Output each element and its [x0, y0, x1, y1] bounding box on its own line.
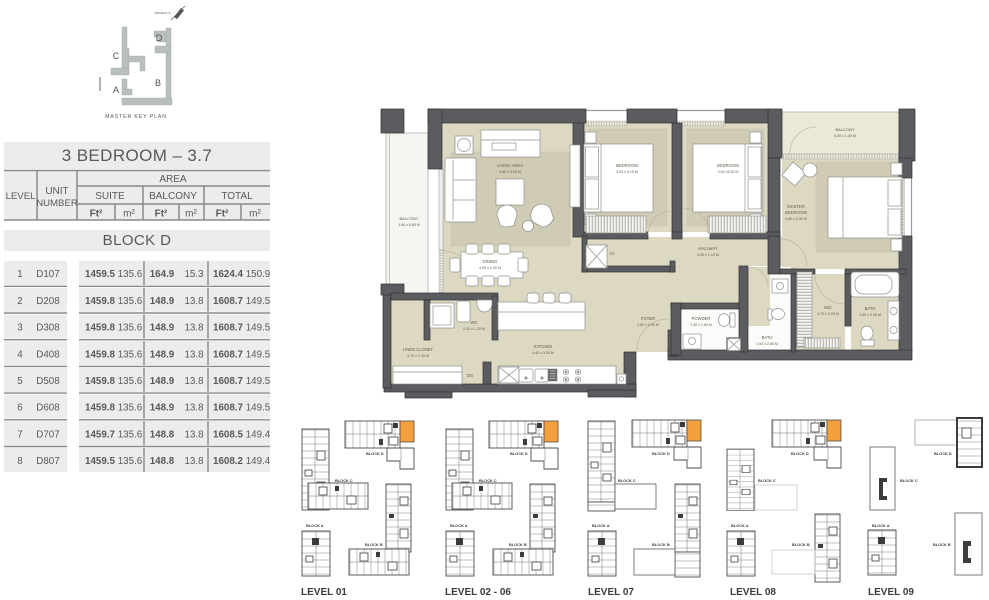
svg-text:13.8: 13.8 — [184, 403, 204, 414]
svg-text:LEVEL: LEVEL — [6, 191, 37, 202]
svg-text:1608.7: 1608.7 — [213, 296, 244, 307]
svg-text:NUMBER: NUMBER — [36, 198, 78, 209]
svg-text:4.40 x 3.00 M: 4.40 x 3.00 M — [532, 351, 554, 355]
svg-text:m²: m² — [185, 209, 197, 220]
svg-text:4.00 x 1.40 M: 4.00 x 1.40 M — [834, 134, 856, 138]
svg-text:3.00 x3.32 M: 3.00 x3.32 M — [718, 170, 739, 174]
svg-text:1459.8: 1459.8 — [85, 403, 116, 414]
svg-text:1608.7: 1608.7 — [213, 349, 244, 360]
svg-text:135.6: 135.6 — [118, 456, 143, 467]
svg-text:BLOCK C: BLOCK C — [618, 478, 636, 483]
svg-text:WIC: WIC — [824, 305, 832, 310]
svg-text:BLOCK D: BLOCK D — [366, 451, 384, 456]
svg-text:4: 4 — [17, 349, 23, 360]
svg-text:LINEN CLOSET: LINEN CLOSET — [403, 347, 434, 352]
svg-text:D107: D107 — [36, 269, 59, 280]
svg-text:8: 8 — [17, 456, 23, 467]
svg-text:BALCONY: BALCONY — [149, 191, 197, 202]
svg-text:D608: D608 — [36, 403, 60, 414]
svg-text:BLOCK D: BLOCK D — [510, 451, 528, 456]
svg-text:150.9: 150.9 — [246, 269, 270, 280]
svg-text:149.5: 149.5 — [246, 403, 270, 414]
svg-text:LEVEL 09: LEVEL 09 — [868, 587, 914, 598]
svg-text:13.8: 13.8 — [184, 323, 204, 334]
svg-text:13.8: 13.8 — [184, 349, 204, 360]
svg-text:A: A — [113, 85, 119, 95]
svg-text:BLOCK B: BLOCK B — [365, 542, 383, 547]
svg-text:15.3: 15.3 — [184, 269, 204, 280]
svg-text:2.20 x 1.20 M: 2.20 x 1.20 M — [463, 327, 485, 331]
svg-text:BLOCK C: BLOCK C — [900, 478, 918, 483]
svg-text:1459.5: 1459.5 — [85, 456, 116, 467]
svg-text:3.00 x 3.10 M: 3.00 x 3.10 M — [616, 170, 638, 174]
svg-text:1.60 x 2.80 M: 1.60 x 2.80 M — [756, 342, 778, 346]
svg-text:BLOCK B: BLOCK B — [509, 542, 527, 547]
svg-text:BLOCK D: BLOCK D — [791, 451, 809, 456]
svg-text:135.6: 135.6 — [118, 296, 143, 307]
svg-text:DINING: DINING — [483, 259, 498, 264]
svg-text:MASTER KEY PLAN: MASTER KEY PLAN — [105, 114, 167, 120]
svg-text:BEDROOM: BEDROOM — [616, 163, 638, 168]
svg-text:D408: D408 — [36, 349, 60, 360]
svg-text:1608.2: 1608.2 — [213, 456, 244, 467]
svg-text:m²: m² — [249, 209, 261, 220]
svg-text:BATH: BATH — [762, 335, 773, 340]
svg-text:1.30 x 1.50 M: 1.30 x 1.50 M — [690, 323, 712, 327]
svg-text:1624.4: 1624.4 — [213, 269, 244, 280]
svg-text:PROJECT N.: PROJECT N. — [155, 11, 172, 15]
svg-text:5: 5 — [17, 376, 23, 387]
svg-text:148.8: 148.8 — [150, 456, 175, 467]
svg-text:1459.8: 1459.8 — [85, 376, 116, 387]
svg-text:Ft²: Ft² — [216, 209, 229, 220]
svg-text:B: B — [155, 78, 161, 88]
svg-text:BLOCK A: BLOCK A — [592, 523, 610, 528]
svg-text:1.50 x 2.50 M: 1.50 x 2.50 M — [637, 323, 659, 327]
svg-text:148.9: 148.9 — [150, 403, 175, 414]
svg-text:6: 6 — [17, 403, 23, 414]
svg-text:13.8: 13.8 — [184, 376, 204, 387]
svg-text:135.6: 135.6 — [118, 349, 143, 360]
svg-text:164.9: 164.9 — [150, 269, 175, 280]
svg-text:D807: D807 — [36, 456, 59, 467]
svg-text:13.8: 13.8 — [184, 456, 204, 467]
svg-text:1.70 x 2.20 M: 1.70 x 2.20 M — [817, 312, 839, 316]
svg-text:LEVEL 07: LEVEL 07 — [588, 587, 634, 598]
svg-text:D208: D208 — [36, 296, 60, 307]
svg-text:UNIT: UNIT — [45, 186, 68, 197]
svg-text:BLOCK D: BLOCK D — [934, 451, 952, 456]
svg-text:BEDROOM: BEDROOM — [717, 163, 739, 168]
svg-text:1.60 x 5.60 M: 1.60 x 5.60 M — [398, 223, 420, 227]
svg-text:LEVEL 02 - 06: LEVEL 02 - 06 — [445, 587, 511, 598]
svg-text:148.9: 148.9 — [150, 349, 175, 360]
svg-text:148.8: 148.8 — [150, 429, 175, 440]
svg-text:4.90 x 2.00 M: 4.90 x 2.00 M — [479, 266, 501, 270]
svg-text:1608.7: 1608.7 — [213, 323, 244, 334]
svg-text:135.6: 135.6 — [118, 376, 143, 387]
svg-text:135.6: 135.6 — [118, 403, 143, 414]
svg-text:Ft²: Ft² — [155, 209, 168, 220]
svg-text:149.5: 149.5 — [246, 323, 270, 334]
svg-text:TOTAL: TOTAL — [221, 191, 253, 202]
svg-text:BLOCK B: BLOCK B — [652, 542, 670, 547]
svg-text:BLOCK B: BLOCK B — [933, 542, 951, 547]
svg-text:FOYER: FOYER — [641, 316, 655, 321]
svg-text:1459.8: 1459.8 — [85, 323, 116, 334]
svg-text:m²: m² — [123, 209, 135, 220]
svg-text:BLOCK A: BLOCK A — [872, 523, 890, 528]
svg-text:BLOCK C: BLOCK C — [758, 478, 776, 483]
svg-text:BALCONY: BALCONY — [399, 216, 418, 221]
svg-text:C: C — [113, 51, 120, 61]
svg-text:149.5: 149.5 — [246, 296, 270, 307]
svg-text:2: 2 — [17, 296, 22, 307]
svg-text:DG: DG — [467, 373, 473, 378]
svg-text:13.8: 13.8 — [184, 296, 204, 307]
svg-text:3.70 x 1.40 M: 3.70 x 1.40 M — [407, 354, 429, 358]
svg-text:BATH: BATH — [865, 306, 876, 311]
svg-text:MASTER: MASTER — [787, 204, 804, 209]
svg-text:148.9: 148.9 — [150, 376, 175, 387]
svg-text:BLOCK B: BLOCK B — [792, 542, 810, 547]
svg-text:BLOCK C: BLOCK C — [479, 478, 497, 483]
svg-text:BLOCK A: BLOCK A — [450, 523, 468, 528]
svg-text:1608.7: 1608.7 — [213, 376, 244, 387]
svg-text:Ft²: Ft² — [90, 209, 103, 220]
svg-text:WC: WC — [471, 320, 478, 325]
svg-text:BLOCK D: BLOCK D — [652, 451, 670, 456]
svg-text:D: D — [156, 33, 163, 43]
svg-text:4.80 x 3.90 M: 4.80 x 3.90 M — [499, 170, 521, 174]
svg-text:D707: D707 — [36, 429, 59, 440]
svg-text:148.9: 148.9 — [150, 323, 175, 334]
svg-text:148.9: 148.9 — [150, 296, 175, 307]
svg-text:135.6: 135.6 — [118, 429, 143, 440]
svg-text:1459.7: 1459.7 — [85, 429, 116, 440]
svg-text:1: 1 — [17, 269, 22, 280]
svg-text:149.4: 149.4 — [246, 429, 270, 440]
svg-text:1608.5: 1608.5 — [213, 429, 244, 440]
svg-text:1.80 x 3.00 M: 1.80 x 3.00 M — [859, 313, 881, 317]
svg-text:POWDER: POWDER — [692, 316, 711, 321]
svg-text:135.6: 135.6 — [118, 269, 143, 280]
svg-text:1459.8: 1459.8 — [85, 349, 116, 360]
svg-text:BLOCK A: BLOCK A — [731, 523, 749, 528]
svg-text:KITCHEN: KITCHEN — [534, 344, 552, 349]
svg-text:LEVEL 08: LEVEL 08 — [730, 587, 776, 598]
svg-text:1459.8: 1459.8 — [85, 296, 116, 307]
svg-text:4.90 x 1.10 M: 4.90 x 1.10 M — [697, 253, 719, 257]
svg-text:13.8: 13.8 — [184, 429, 204, 440]
svg-text:HALLWAY: HALLWAY — [698, 246, 717, 251]
svg-text:4.60 x 3.30 M: 4.60 x 3.30 M — [785, 217, 807, 221]
svg-text:BLOCK C: BLOCK C — [335, 478, 353, 483]
svg-text:149.4: 149.4 — [246, 456, 270, 467]
svg-text:BALCONY: BALCONY — [835, 127, 854, 132]
svg-text:1608.7: 1608.7 — [213, 403, 244, 414]
svg-text:LEVEL 01: LEVEL 01 — [301, 587, 347, 598]
svg-text:3: 3 — [17, 323, 23, 334]
svg-text:AREA: AREA — [159, 174, 187, 185]
svg-text:BLOCK A: BLOCK A — [306, 523, 324, 528]
svg-text:AC: AC — [609, 251, 615, 256]
svg-text:7: 7 — [17, 429, 22, 440]
svg-text:LIVING AREA: LIVING AREA — [497, 163, 523, 168]
svg-text:D508: D508 — [36, 376, 60, 387]
svg-text:135.6: 135.6 — [118, 323, 143, 334]
svg-text:1459.5: 1459.5 — [85, 269, 116, 280]
svg-text:149.5: 149.5 — [246, 376, 270, 387]
svg-text:D308: D308 — [36, 323, 60, 334]
svg-text:149.5: 149.5 — [246, 349, 270, 360]
svg-text:BEDROOM: BEDROOM — [785, 210, 807, 215]
svg-text:SUITE: SUITE — [95, 191, 125, 202]
